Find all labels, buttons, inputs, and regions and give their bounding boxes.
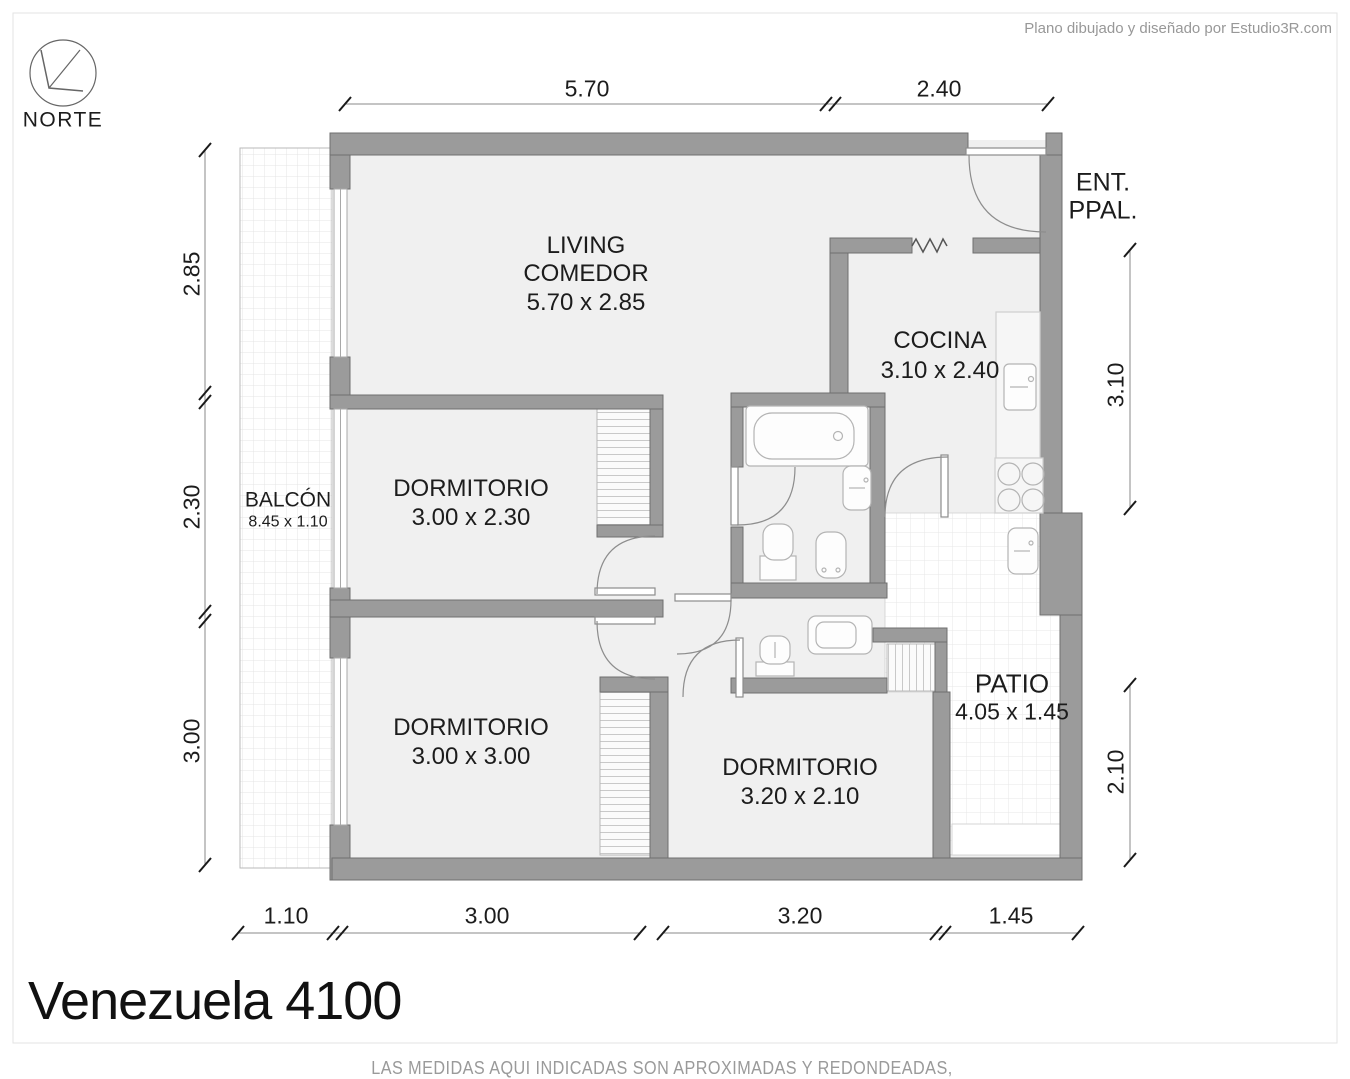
dim-left-1: 2.85 [178,252,205,297]
room-label-dormitorio1: DORMITORIO [393,475,549,503]
room-label-cocina: COCINA [893,327,986,355]
room-label-balcon: BALCÓN [245,489,331,514]
closet-bath2 [887,644,935,691]
room-label-dormitorio3: DORMITORIO [722,754,878,782]
dim-bottom-3: 3.20 [778,902,823,929]
dim-top-2: 2.40 [917,75,962,102]
room-label-dormitorio2: DORMITORIO [393,714,549,742]
bidet-icon [816,532,846,578]
kitchen-sink-icon [1004,364,1036,410]
page-title: Venezuela 4100 [28,970,401,1032]
windows [334,189,347,825]
dim-bottom-4: 1.45 [989,902,1034,929]
dim-right-1: 3.10 [1102,363,1129,408]
dim-left-2: 2.30 [178,485,205,530]
room-size-dormitorio1: 3.00 x 2.30 [412,504,531,532]
north-arrow-icon [30,40,96,106]
room-size-patio: 4.05 x 1.45 [955,698,1069,725]
patio-lower-strip [952,824,1060,855]
laundry-sink-icon [1008,528,1038,574]
credit-text: Plano dibujado y diseñado por Estudio3R.… [1024,20,1332,37]
room-size-dormitorio2: 3.00 x 3.00 [412,743,531,771]
closet-dorm1 [597,409,650,525]
room-size-dormitorio3: 3.20 x 2.10 [741,783,860,811]
dim-left-3: 3.00 [178,719,205,764]
north-label: NORTE [23,109,104,134]
toilet-icon [760,524,796,580]
dim-top-1: 5.70 [565,75,610,102]
shower-tray-icon [808,616,872,654]
room-size-balcon: 8.45 x 1.10 [248,514,327,533]
floor-plan: Plano dibujado y diseñado por Estudio3R.… [0,0,1350,1079]
dim-bottom-2: 3.00 [465,902,510,929]
floor-plan-drawing [0,0,1350,1079]
closet-dorm2 [600,692,650,855]
room-label-living-1: LIVING [547,232,626,260]
stove-icon [995,458,1044,513]
room-size-cocina: 3.10 x 2.40 [881,357,1000,385]
disclaimer-text: LAS MEDIDAS AQUI INDICADAS SON APROXIMAD… [371,1058,979,1079]
bath-sink-icon [843,466,871,510]
bathtub-icon [746,406,868,466]
room-label-living-2: COMEDOR [523,260,648,288]
toilet2-icon [756,636,794,676]
entry-label-line1: ENT. [1076,168,1130,198]
dim-bottom-1: 1.10 [264,902,309,929]
dim-right-2: 2.10 [1102,750,1129,795]
room-label-patio: PATIO [975,669,1049,700]
entry-label-line2: PPAL. [1068,196,1137,226]
room-size-living: 5.70 x 2.85 [527,289,646,317]
